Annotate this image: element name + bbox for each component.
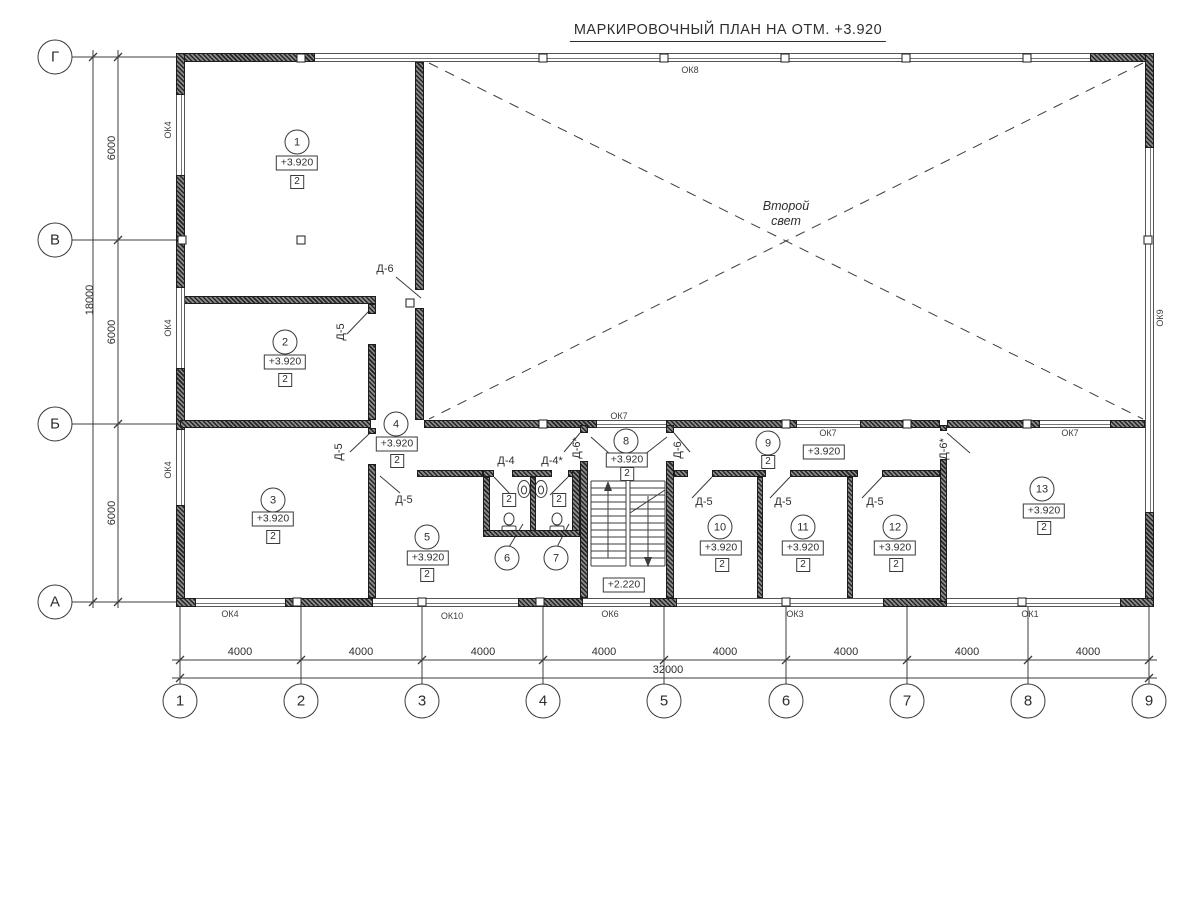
column-marker	[539, 420, 548, 429]
door-label: Д-5	[395, 494, 412, 506]
wall-segment	[712, 470, 766, 477]
window-band	[196, 598, 285, 607]
wall-segment	[580, 425, 588, 433]
room-elevation-mark: +3.920	[782, 541, 824, 556]
column-marker	[1144, 236, 1153, 245]
wall-segment	[530, 477, 536, 537]
column-marker	[782, 598, 791, 607]
wall-segment	[180, 420, 371, 428]
wall-segment	[483, 477, 490, 537]
room-elevation-mark: +3.920	[803, 445, 845, 460]
room-number-badge: 10	[708, 515, 733, 540]
room-category-mark: 2	[266, 530, 280, 544]
wall-segment	[847, 477, 853, 598]
wall-segment	[180, 296, 376, 304]
room-number-badge: 12	[883, 515, 908, 540]
column-marker	[902, 54, 911, 63]
window-band	[176, 288, 185, 368]
wall-segment	[860, 420, 940, 428]
wall-segment	[176, 505, 185, 607]
wall-segment	[882, 470, 940, 477]
door-label: Д-5	[695, 496, 712, 508]
stair-landing-elevation: +2.220	[603, 578, 645, 593]
dimension-segment-label: 4000	[955, 646, 979, 658]
column-marker	[781, 54, 790, 63]
dimension-segment-label: 4000	[1076, 646, 1100, 658]
window-band	[1040, 420, 1110, 428]
column-marker	[418, 598, 427, 607]
dimension-total-label: 32000	[653, 664, 684, 676]
column-marker	[1023, 420, 1032, 429]
col-axis-bubble: 4	[526, 684, 561, 719]
room-number-badge: 4	[384, 412, 409, 437]
door-label: Д-4*	[541, 455, 563, 467]
column-marker	[1023, 54, 1032, 63]
wall-segment	[483, 470, 494, 477]
wall-segment	[176, 175, 185, 288]
door-label: Д-6	[672, 441, 684, 458]
wall-segment	[883, 598, 947, 607]
dimension-segment-label: 6000	[106, 136, 118, 160]
wall-segment	[757, 477, 763, 598]
room-elevation-mark: +3.920	[252, 512, 294, 527]
room-category-mark: 2	[889, 558, 903, 572]
room-number-badge: 2	[273, 330, 298, 355]
second-light-cross	[429, 63, 1143, 419]
window-label: ОК4	[163, 461, 173, 478]
column-marker	[1018, 598, 1027, 607]
room-category-mark: 2	[502, 493, 516, 507]
window-label: ОК3	[786, 609, 803, 619]
column-marker	[903, 420, 912, 429]
window-band	[176, 430, 185, 505]
col-axis-bubble: 7	[890, 684, 925, 719]
window-label: ОК4	[163, 121, 173, 138]
window-label: ОК4	[221, 609, 238, 619]
wall-segment	[415, 62, 424, 290]
room-number-badge: 5	[415, 525, 440, 550]
room-elevation-mark: +3.920	[1023, 504, 1065, 519]
window-band	[597, 420, 666, 428]
col-axis-bubble: 8	[1011, 684, 1046, 719]
wall-segment	[415, 308, 424, 420]
wall-segment	[666, 461, 674, 598]
col-axis-bubble: 6	[769, 684, 804, 719]
column-marker	[539, 54, 548, 63]
door-label: Д-5	[335, 323, 347, 340]
room-elevation-mark: +3.920	[606, 453, 648, 468]
window-band	[176, 95, 185, 175]
room-category-mark: 2	[552, 493, 566, 507]
window-label: ОК7	[610, 411, 627, 421]
row-axis-bubble: Г	[38, 40, 73, 75]
dimension-total-label: 18000	[84, 285, 96, 316]
column-marker	[297, 54, 306, 63]
floor-plan-canvas: МАРКИРОВОЧНЫЙ ПЛАН НА ОТМ. +3.920 Второй…	[0, 0, 1200, 900]
col-axis-bubble: 9	[1132, 684, 1167, 719]
window-band	[677, 598, 883, 607]
dimension-segment-label: 6000	[106, 320, 118, 344]
wall-segment	[424, 420, 597, 428]
room-category-mark: 2	[715, 558, 729, 572]
row-axis-bubble: Б	[38, 407, 73, 442]
wall-segment	[176, 598, 196, 607]
window-label: ОК4	[163, 319, 173, 336]
wall-segment	[650, 598, 677, 607]
wall-segment	[368, 344, 376, 420]
column-marker	[178, 236, 187, 245]
room-number-badge: 9	[756, 431, 781, 456]
page-title: МАРКИРОВОЧНЫЙ ПЛАН НА ОТМ. +3.920	[570, 22, 886, 42]
window-label: ОК7	[819, 428, 836, 438]
room-elevation-mark: +3.920	[264, 355, 306, 370]
door-label: Д-6*	[571, 437, 583, 459]
window-label: ОК10	[441, 611, 463, 621]
second-light-label-line2: свет	[771, 214, 801, 228]
room-number-badge: 6	[495, 546, 520, 571]
room-category-mark: 2	[796, 558, 810, 572]
window-label: ОК9	[1155, 309, 1165, 326]
door-label: Д-5	[774, 496, 791, 508]
wall-segment	[1145, 512, 1154, 607]
dimension-segment-label: 4000	[349, 646, 373, 658]
room-number-badge: 1	[285, 130, 310, 155]
wall-segment	[1145, 53, 1154, 148]
dimension-segment-label: 4000	[471, 646, 495, 658]
dimension-segment-label: 6000	[106, 501, 118, 525]
wall-segment	[790, 470, 858, 477]
wall-segment	[1120, 598, 1154, 607]
window-label: ОК7	[1061, 428, 1078, 438]
room-elevation-mark: +3.920	[874, 541, 916, 556]
row-axis-bubble: А	[38, 585, 73, 620]
dimension-segment-label: 4000	[834, 646, 858, 658]
window-label: ОК6	[601, 609, 618, 619]
window-band	[947, 598, 1120, 607]
column-marker	[293, 598, 302, 607]
door-label: Д-5	[333, 443, 345, 460]
wall-segment	[368, 464, 376, 598]
col-axis-bubble: 3	[405, 684, 440, 719]
room-elevation-mark: +3.920	[700, 541, 742, 556]
wall-segment	[666, 420, 797, 428]
room-category-mark: 2	[390, 454, 404, 468]
window-band	[1145, 148, 1154, 512]
room-number-badge: 8	[614, 429, 639, 454]
room-number-badge: 11	[791, 515, 816, 540]
room-elevation-mark: +3.920	[407, 551, 449, 566]
room-number-badge: 3	[261, 488, 286, 513]
wall-segment	[518, 598, 583, 607]
room-category-mark: 2	[620, 467, 634, 481]
wall-segment	[940, 425, 947, 431]
wall-segment	[580, 461, 588, 598]
wall-segment	[483, 530, 580, 537]
door-label: Д-5	[866, 496, 883, 508]
room-number-badge: 13	[1030, 477, 1055, 502]
window-label: ОК1	[1021, 609, 1038, 619]
window-label: ОК8	[681, 65, 698, 75]
door-label: Д-4	[497, 455, 514, 467]
dimension-segment-label: 4000	[592, 646, 616, 658]
door-label: Д-6	[376, 263, 393, 275]
col-axis-bubble: 5	[647, 684, 682, 719]
room-category-mark: 2	[278, 373, 292, 387]
window-band	[583, 598, 650, 607]
stairs	[591, 481, 665, 567]
col-axis-bubble: 2	[284, 684, 319, 719]
wall-segment	[512, 470, 552, 477]
wall-segment	[666, 425, 674, 433]
column-marker	[406, 299, 415, 308]
wall-segment	[368, 304, 376, 314]
wall-segment	[674, 470, 688, 477]
column-marker	[536, 598, 545, 607]
window-band	[797, 420, 860, 428]
window-band	[315, 53, 1090, 62]
wall-segment	[1110, 420, 1145, 428]
row-axis-bubble: В	[38, 223, 73, 258]
wall-segment	[368, 428, 376, 434]
door-label: Д-6*	[938, 438, 950, 460]
wall-segment	[572, 470, 580, 537]
dimension-segment-label: 4000	[228, 646, 252, 658]
wall-segment	[176, 53, 185, 95]
wall-segment	[417, 470, 483, 477]
room-category-mark: 2	[290, 175, 304, 189]
second-light-label-line1: Второй	[763, 199, 809, 213]
window-band	[373, 598, 518, 607]
room-category-mark: 2	[420, 568, 434, 582]
room-category-mark: 2	[1037, 521, 1051, 535]
column-marker	[297, 236, 306, 245]
room-category-mark: 2	[761, 455, 775, 469]
dimension-segment-label: 4000	[713, 646, 737, 658]
wall-segment	[940, 459, 947, 602]
room-elevation-mark: +3.920	[376, 437, 418, 452]
room-elevation-mark: +3.920	[276, 156, 318, 171]
column-marker	[660, 54, 669, 63]
wall-segment	[176, 53, 315, 62]
room-number-badge: 7	[544, 546, 569, 571]
column-marker	[782, 420, 791, 429]
col-axis-bubble: 1	[163, 684, 198, 719]
